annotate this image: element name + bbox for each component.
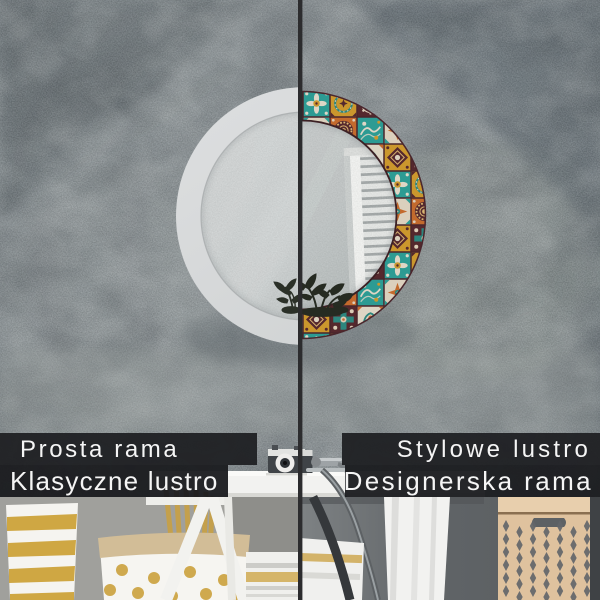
svg-text:Prosta rama: Prosta rama bbox=[20, 436, 179, 463]
svg-text:Klasyczne lustro: Klasyczne lustro bbox=[10, 466, 219, 496]
svg-text:Stylowe lustro: Stylowe lustro bbox=[397, 436, 591, 463]
svg-text:Designerska rama: Designerska rama bbox=[344, 466, 593, 496]
